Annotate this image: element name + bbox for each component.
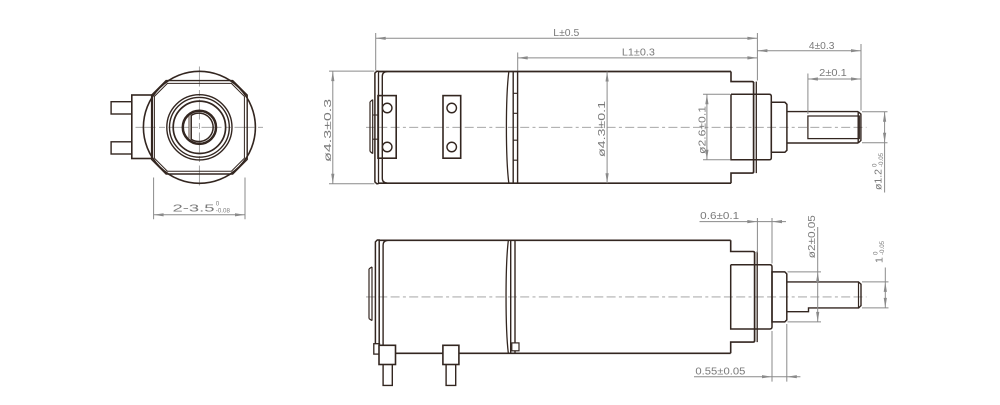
svg-text:0.55±0.05: 0.55±0.05 [695, 367, 746, 378]
svg-text:ø4.3±0.1: ø4.3±0.1 [596, 101, 608, 157]
svg-text:L±0.5: L±0.5 [553, 27, 579, 39]
svg-text:L1±0.3: L1±0.3 [622, 47, 655, 59]
svg-text:ø1.2: ø1.2 [873, 169, 885, 190]
svg-text:0.6±0.1: 0.6±0.1 [700, 211, 739, 222]
svg-text:-0.05: -0.05 [878, 152, 885, 167]
svg-text:2-3.5: 2-3.5 [173, 202, 215, 214]
svg-text:-0.05: -0.05 [879, 240, 886, 255]
svg-text:ø4.3±0.3: ø4.3±0.3 [322, 99, 334, 162]
svg-text:2±0.1: 2±0.1 [819, 67, 847, 79]
svg-text:ø2±0.05: ø2±0.05 [806, 215, 818, 258]
svg-text:ø2.6±0.1: ø2.6±0.1 [698, 105, 709, 154]
svg-text:4±0.3: 4±0.3 [809, 40, 835, 52]
svg-text:-0.08: -0.08 [216, 207, 231, 214]
svg-text:1: 1 [873, 257, 885, 263]
